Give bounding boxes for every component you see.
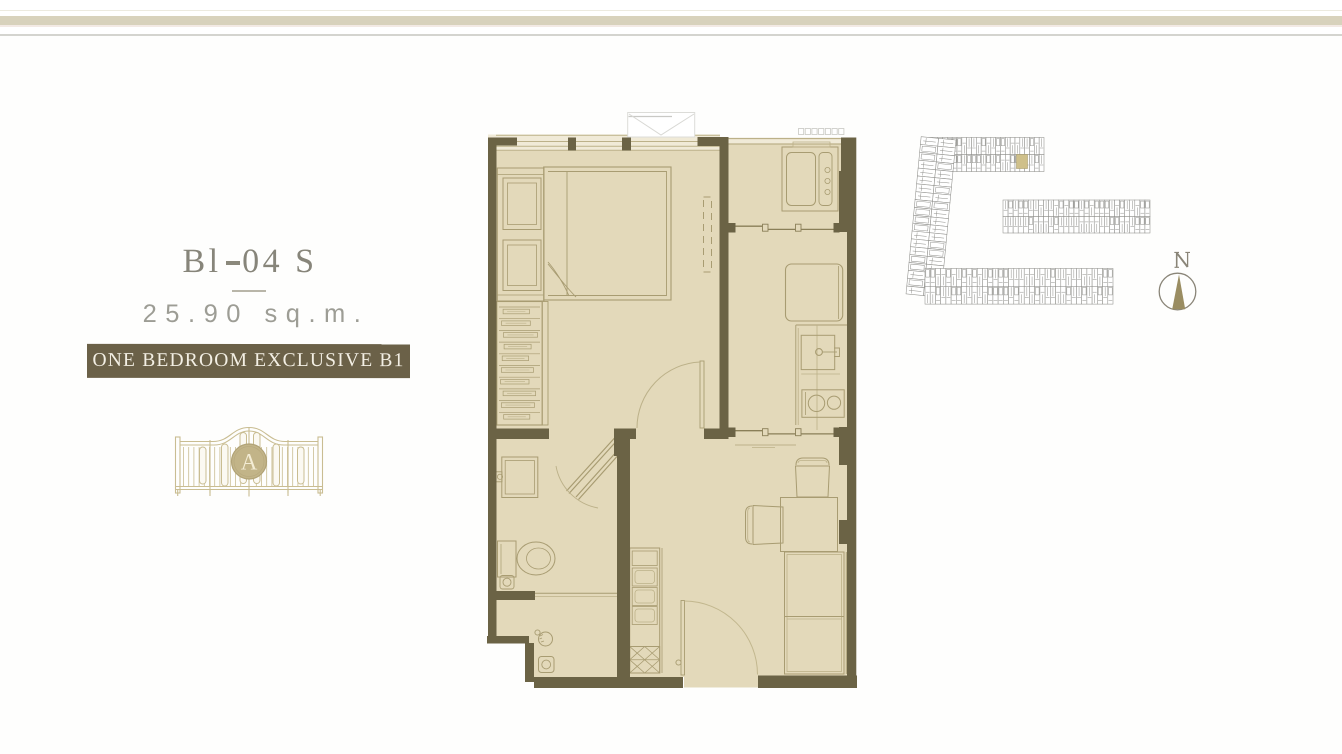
svg-text:A: A (241, 450, 258, 475)
